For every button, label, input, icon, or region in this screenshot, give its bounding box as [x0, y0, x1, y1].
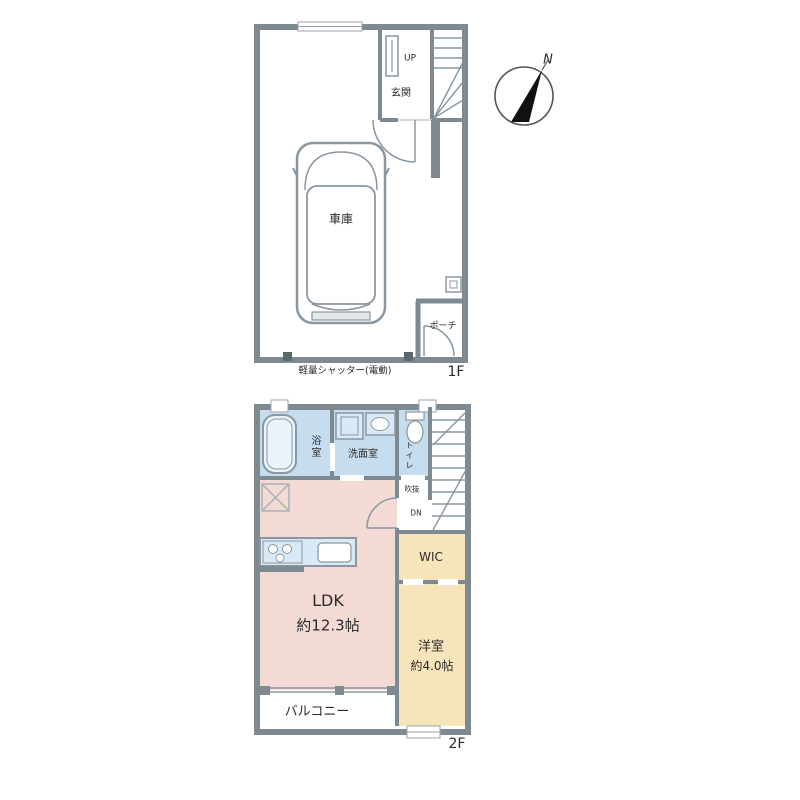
wall-stub	[431, 120, 440, 178]
balcony-window	[260, 686, 397, 695]
shutter-note: 軽量シャッター(電動)	[299, 366, 392, 376]
car-symbol	[293, 143, 389, 323]
floor1-plan	[257, 22, 553, 361]
ldk-room	[260, 478, 397, 690]
wic-label: WIC	[419, 551, 443, 563]
garage-top-window	[298, 22, 362, 31]
compass	[495, 60, 553, 125]
garage-label: 車庫	[329, 213, 353, 225]
porch-label: ポーチ	[429, 323, 456, 332]
stairs-up-label: UP	[404, 55, 416, 64]
compass-north-label: N	[543, 54, 553, 67]
toilet-label: トイレ	[405, 441, 413, 471]
shutter-end-right	[404, 352, 413, 361]
floor1-label: 1F	[448, 365, 465, 379]
ldk-name-label: LDK	[312, 593, 344, 609]
washroom-label: 洗面室	[348, 450, 378, 460]
toilet-symbol	[406, 412, 424, 443]
washbasin-symbol	[366, 413, 395, 435]
bedroom-size-label: 約4.0帖	[410, 660, 453, 672]
balcony-label: バルコニー	[285, 706, 350, 719]
meter-box-symbol	[446, 277, 461, 292]
bedroom-name-label: 洋室	[418, 641, 444, 654]
washing-machine-symbol	[336, 413, 363, 439]
stairs-down-label: DN	[410, 509, 421, 517]
ldk-size-label: 約12.3帖	[296, 619, 359, 634]
kitchen-counter-symbol	[260, 538, 356, 572]
entrance-label: 玄関	[391, 89, 411, 99]
floorplan-drawing	[0, 0, 800, 800]
bathtub-symbol	[263, 415, 296, 473]
shoe-cabinet-symbol	[386, 36, 398, 76]
compass-needle	[511, 70, 542, 122]
stair-void-label: 吹抜	[405, 485, 420, 493]
stairs-2f	[432, 412, 466, 530]
bedroom-bottom-window	[407, 726, 440, 738]
shutter-end-left	[283, 352, 292, 361]
floor2-label: 2F	[449, 737, 466, 751]
bath-label: 浴室	[309, 435, 319, 459]
floorplan-page: UP 玄関 車庫 ポーチ 軽量シャッター(電動) 1F N 浴室 洗面室 トイレ…	[0, 0, 800, 800]
